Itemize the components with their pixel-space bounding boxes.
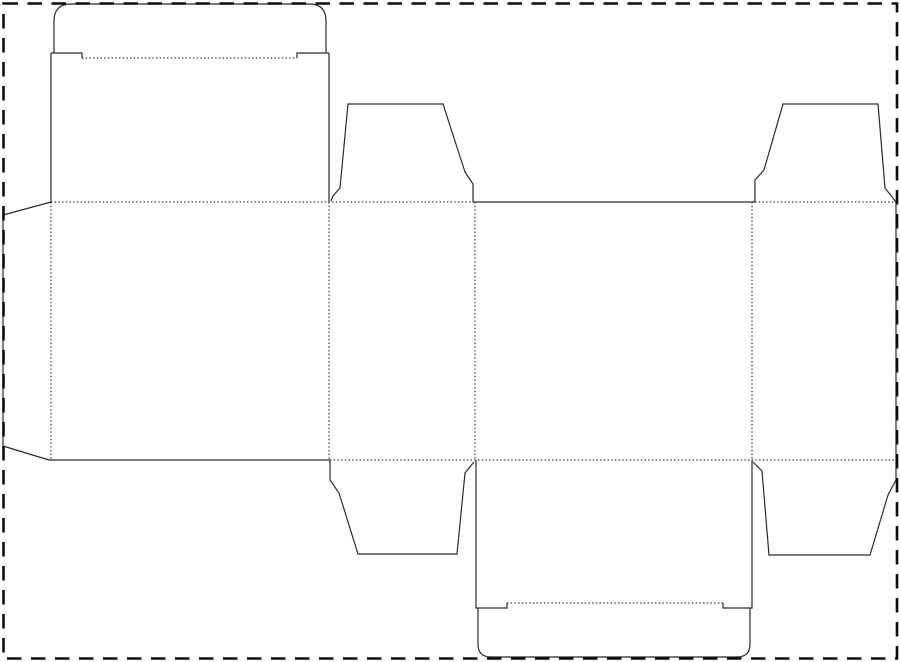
cut-lines-group xyxy=(3,4,896,657)
tuck-flap-left-shoulder xyxy=(51,53,82,58)
bottom-panel-right-edge xyxy=(723,460,752,608)
dust-flap-bottom-left xyxy=(330,460,474,554)
dieline-sheet xyxy=(0,0,900,662)
dust-flap-top-right xyxy=(755,104,896,202)
fold-lines-group xyxy=(51,58,896,603)
sheet-border xyxy=(4,4,898,659)
bottom-panel-left-edge xyxy=(476,460,507,608)
box-dieline-diagram xyxy=(0,0,900,662)
tuck-flap-outline xyxy=(54,4,326,53)
glue-flap-outline xyxy=(3,202,51,460)
dust-flap-bottom-right xyxy=(753,462,896,555)
tuck-flap-right-shoulder xyxy=(297,53,329,58)
bottom-tuck-flap-outline xyxy=(478,608,750,657)
dust-flap-top-left xyxy=(331,104,473,202)
